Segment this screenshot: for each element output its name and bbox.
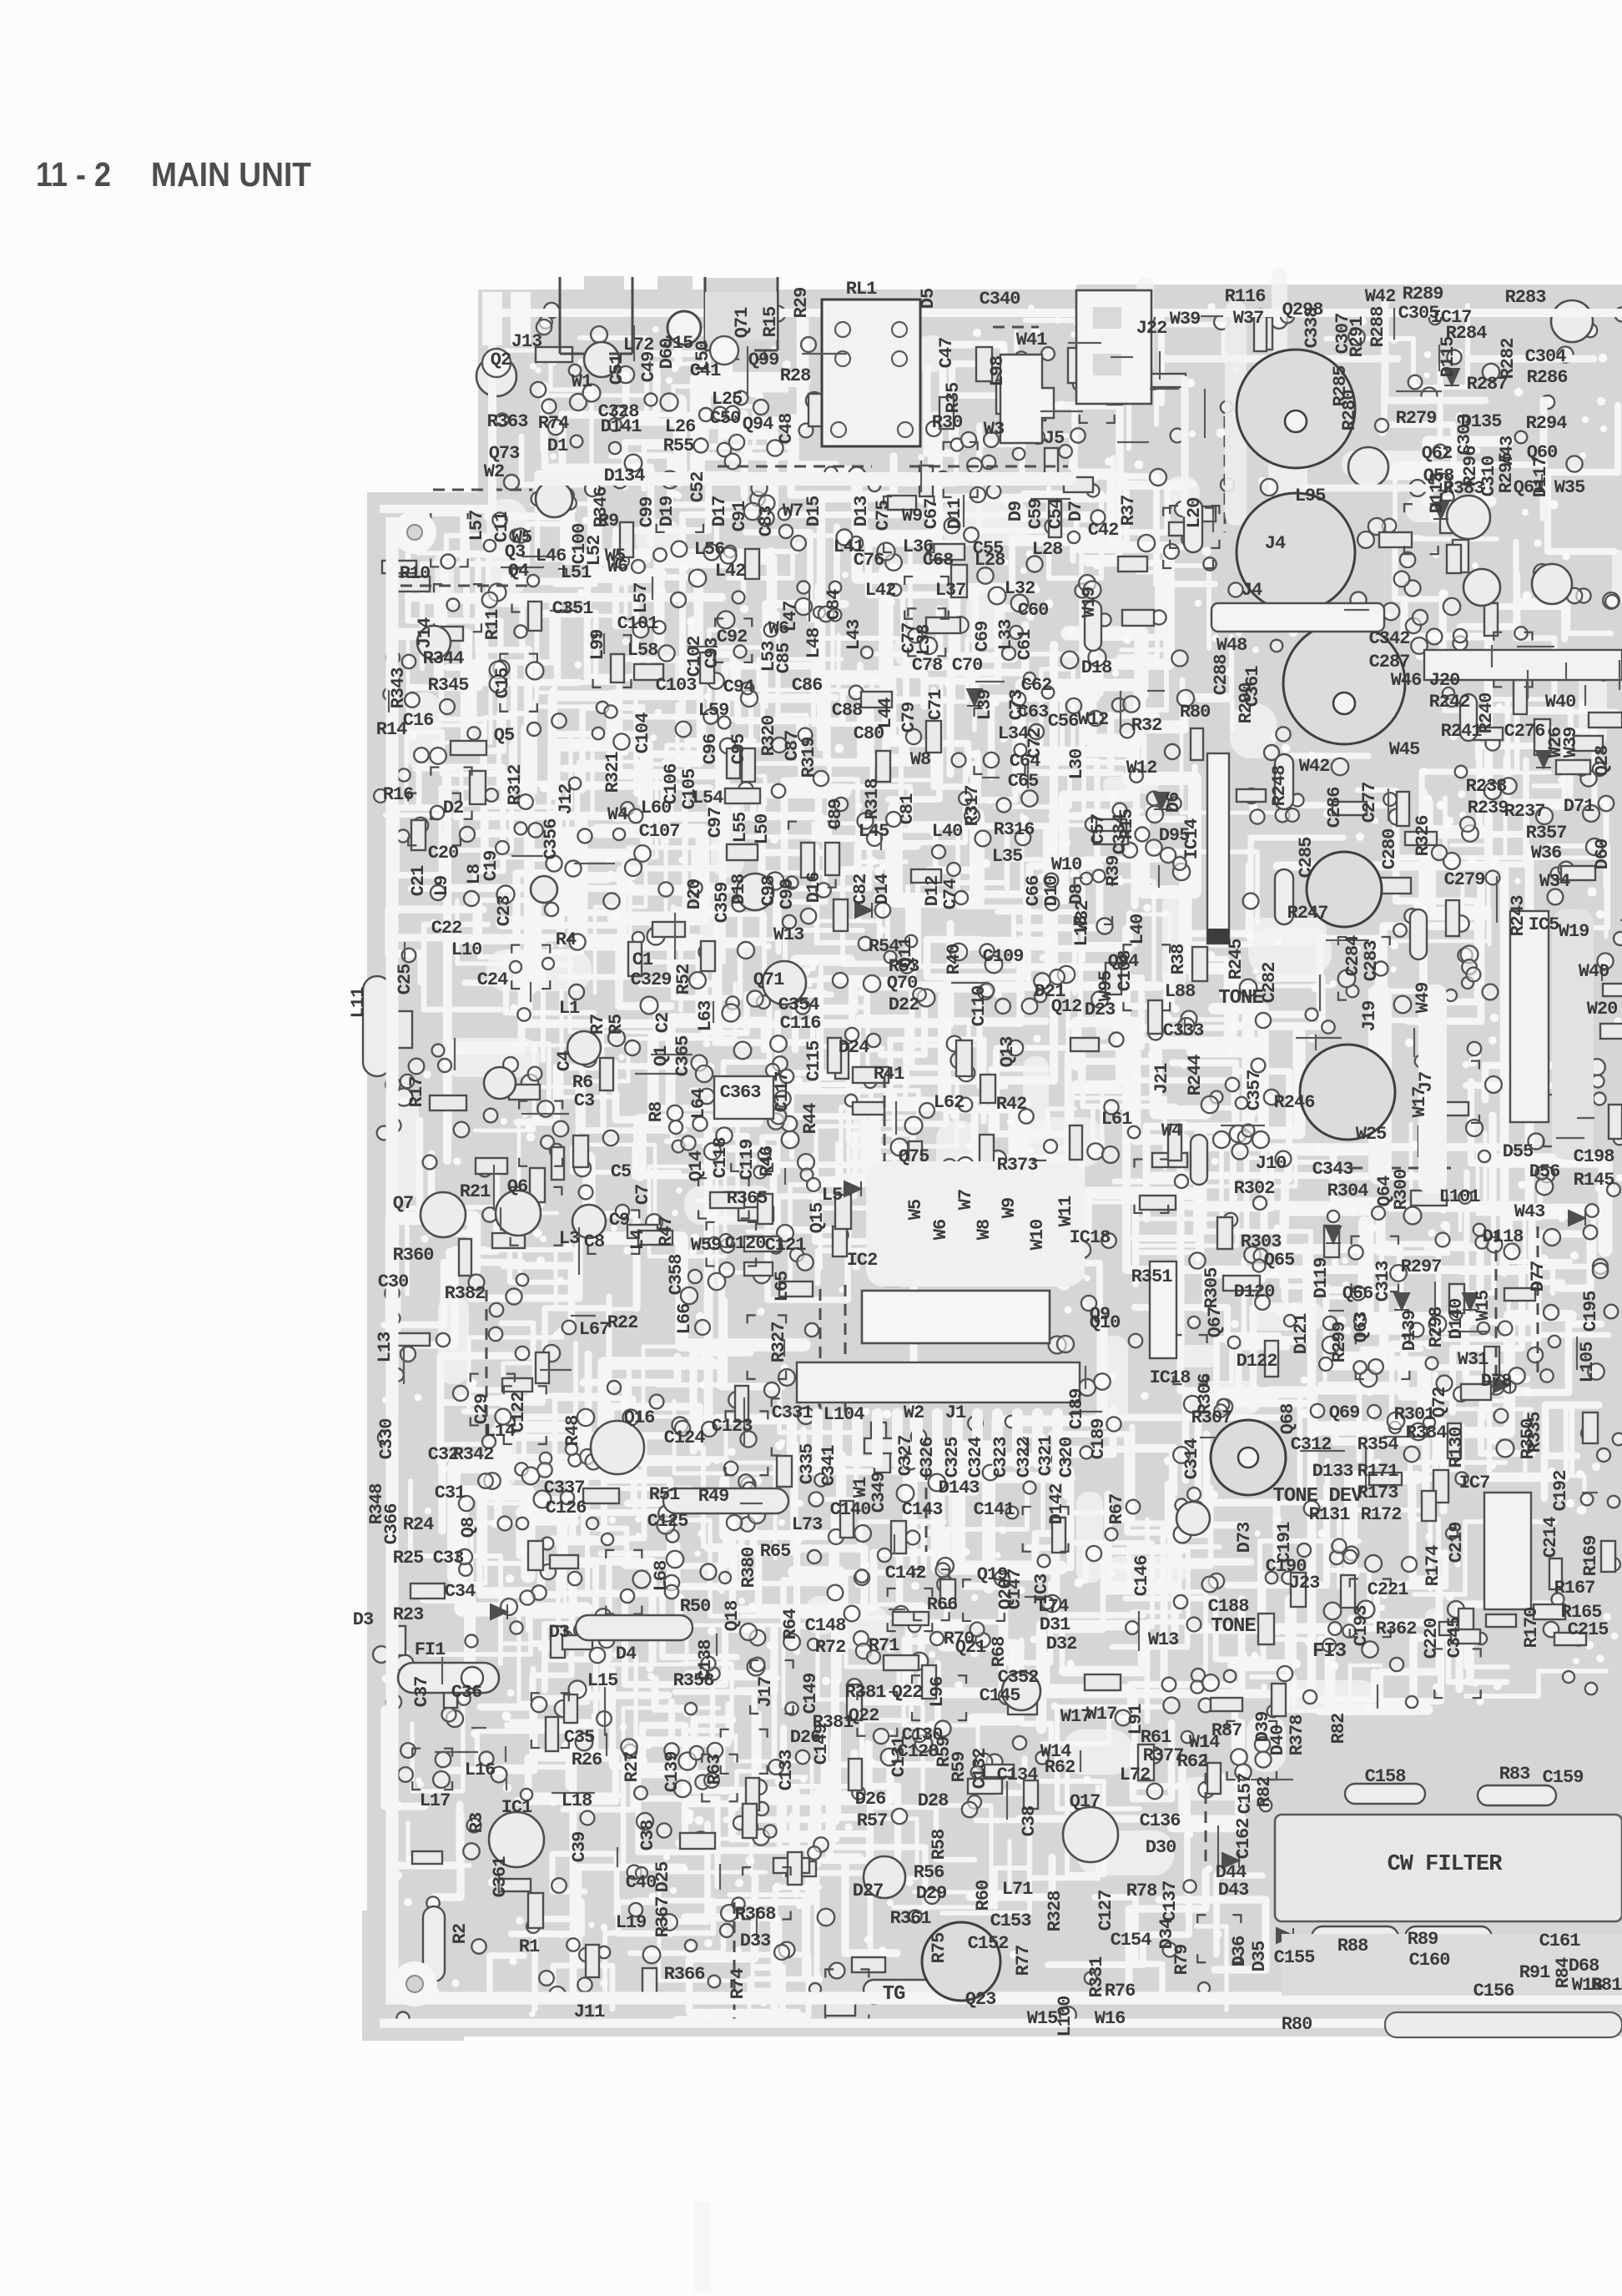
svg-text:C142: C142 — [885, 1563, 926, 1584]
svg-text:L64: L64 — [688, 1088, 709, 1119]
svg-text:D2: D2 — [443, 798, 463, 818]
svg-text:W37: W37 — [1233, 308, 1264, 329]
svg-text:C343: C343 — [1312, 1159, 1354, 1180]
svg-text:R244: R244 — [1185, 1055, 1206, 1096]
svg-text:Q12: Q12 — [1051, 996, 1082, 1017]
svg-text:C117: C117 — [772, 1072, 793, 1113]
svg-text:L72: L72 — [623, 335, 654, 355]
svg-text:W5: W5 — [511, 527, 532, 548]
svg-text:J23: J23 — [1289, 1573, 1320, 1594]
svg-text:C340: C340 — [980, 289, 1020, 310]
svg-text:L5: L5 — [822, 1185, 843, 1206]
svg-text:W12: W12 — [1126, 758, 1157, 778]
svg-text:C193: C193 — [1351, 1605, 1372, 1647]
svg-text:D143: D143 — [939, 1478, 980, 1498]
svg-text:C127: C127 — [1096, 1891, 1116, 1931]
svg-text:Q67: Q67 — [1205, 1307, 1226, 1338]
svg-text:W10: W10 — [1051, 854, 1082, 875]
svg-text:C33: C33 — [433, 1548, 464, 1568]
svg-text:C101: C101 — [617, 613, 659, 634]
svg-text:L57: L57 — [631, 583, 652, 614]
svg-text:L11: L11 — [348, 987, 369, 1018]
svg-text:C158: C158 — [1365, 1766, 1407, 1787]
svg-text:C2: C2 — [652, 1013, 673, 1033]
svg-text:C357: C357 — [1244, 1070, 1265, 1111]
svg-text:L16: L16 — [465, 1760, 496, 1780]
svg-text:R15: R15 — [1116, 808, 1137, 839]
svg-text:L13: L13 — [375, 1332, 395, 1362]
svg-text:D19: D19 — [657, 496, 678, 527]
svg-text:J13: J13 — [511, 331, 542, 352]
svg-text:C333: C333 — [1163, 1020, 1205, 1041]
svg-text:R28: R28 — [780, 365, 811, 386]
svg-text:D29: D29 — [916, 1883, 947, 1904]
svg-text:TONE: TONE — [1211, 1615, 1256, 1638]
svg-text:C286: C286 — [1324, 788, 1345, 828]
svg-text:C137: C137 — [1160, 1881, 1181, 1922]
svg-text:J5: J5 — [1044, 428, 1065, 449]
svg-text:C89: C89 — [825, 799, 846, 830]
svg-text:C198: C198 — [1574, 1146, 1615, 1167]
svg-text:Q61: Q61 — [1514, 477, 1544, 498]
svg-text:C331: C331 — [772, 1402, 814, 1423]
svg-text:L3: L3 — [559, 1228, 580, 1249]
svg-text:R82: R82 — [1328, 1714, 1349, 1745]
svg-text:L45: L45 — [859, 821, 889, 842]
svg-text:C81: C81 — [897, 793, 918, 824]
svg-text:Q16: Q16 — [624, 1407, 655, 1428]
svg-text:CW FILTER: CW FILTER — [1388, 1852, 1504, 1877]
svg-text:L50: L50 — [752, 814, 773, 845]
svg-text:C25: C25 — [395, 964, 416, 994]
svg-text:IC7: IC7 — [1459, 1473, 1490, 1493]
svg-text:L37: L37 — [935, 580, 966, 601]
svg-text:C214: C214 — [1540, 1517, 1561, 1558]
svg-text:C304: C304 — [1525, 346, 1567, 367]
svg-text:R173: R173 — [1358, 1483, 1399, 1503]
svg-text:R1: R1 — [519, 1936, 540, 1957]
svg-text:TG: TG — [883, 1983, 905, 2006]
svg-text:W9: W9 — [999, 1198, 1020, 1218]
svg-text:R16: R16 — [383, 784, 414, 805]
svg-text:R345: R345 — [428, 675, 470, 696]
svg-text:R63: R63 — [704, 1754, 725, 1785]
svg-text:Q22: Q22 — [892, 1682, 923, 1703]
svg-text:C365: C365 — [672, 1035, 693, 1077]
svg-text:L100: L100 — [1055, 1996, 1075, 2037]
svg-text:R88: R88 — [1337, 1936, 1368, 1956]
svg-text:D43: D43 — [1218, 1880, 1249, 1901]
svg-text:R3: R3 — [466, 1812, 487, 1833]
svg-text:C72: C72 — [1025, 728, 1045, 759]
svg-text:IC5: IC5 — [1529, 914, 1559, 935]
svg-text:C75: C75 — [873, 500, 894, 531]
svg-text:R237: R237 — [1504, 801, 1545, 822]
svg-text:Q66: Q66 — [1342, 1283, 1373, 1304]
svg-text:R41: R41 — [874, 1064, 904, 1085]
svg-text:D16: D16 — [803, 873, 824, 904]
svg-text:R362: R362 — [1376, 1619, 1417, 1639]
svg-text:IC1: IC1 — [501, 1797, 532, 1818]
svg-text:L73: L73 — [792, 1514, 823, 1535]
svg-text:L20: L20 — [1184, 498, 1205, 529]
svg-text:D139: D139 — [1399, 1311, 1420, 1352]
svg-text:D78: D78 — [1481, 1371, 1512, 1392]
svg-text:J17: J17 — [755, 1677, 776, 1708]
svg-text:L42: L42 — [715, 561, 746, 582]
svg-text:C23: C23 — [494, 895, 515, 926]
svg-text:TONE: TONE — [1218, 987, 1263, 1010]
svg-text:C21: C21 — [408, 865, 429, 896]
svg-text:Q8: Q8 — [458, 1517, 479, 1538]
svg-text:W31: W31 — [1458, 1349, 1489, 1370]
svg-text:L104: L104 — [824, 1404, 865, 1425]
svg-text:L67: L67 — [579, 1319, 610, 1340]
svg-text:D15: D15 — [803, 496, 824, 526]
svg-text:R312: R312 — [505, 765, 526, 806]
svg-text:C335: C335 — [797, 1443, 818, 1485]
svg-text:R77: R77 — [1013, 1946, 1034, 1976]
svg-text:C132: C132 — [970, 1749, 990, 1790]
svg-text:C54: C54 — [1045, 498, 1066, 529]
svg-text:Q68: Q68 — [1277, 1403, 1298, 1434]
svg-text:R319: R319 — [798, 738, 819, 778]
svg-text:C322: C322 — [1014, 1438, 1035, 1478]
svg-text:W39: W39 — [1560, 728, 1581, 758]
svg-text:C366: C366 — [381, 1504, 402, 1545]
svg-text:C358: C358 — [666, 1254, 687, 1296]
svg-text:L98: L98 — [987, 355, 1008, 386]
svg-text:W35: W35 — [1554, 477, 1585, 498]
svg-text:D119: D119 — [1311, 1258, 1332, 1299]
svg-text:Q69: Q69 — [1329, 1402, 1360, 1423]
svg-text:MAIN UNIT: MAIN UNIT — [151, 155, 311, 194]
svg-text:R242: R242 — [1429, 692, 1470, 712]
svg-text:R145: R145 — [1574, 1170, 1615, 1191]
svg-text:Q4: Q4 — [508, 561, 529, 582]
svg-text:D17: D17 — [709, 496, 730, 527]
svg-text:W7: W7 — [955, 1190, 976, 1210]
svg-text:R10: R10 — [400, 563, 431, 584]
svg-text:C95: C95 — [728, 733, 749, 764]
svg-text:R382: R382 — [445, 1283, 486, 1304]
svg-text:C188: C188 — [1208, 1596, 1250, 1617]
svg-text:D68: D68 — [1569, 1956, 1599, 1976]
svg-text:R50: R50 — [680, 1596, 711, 1617]
svg-text:R17: R17 — [406, 1077, 427, 1108]
svg-text:L88: L88 — [1165, 981, 1196, 1002]
svg-text:R131: R131 — [1309, 1504, 1351, 1525]
svg-text:Q94: Q94 — [743, 414, 773, 435]
svg-text:R87: R87 — [1211, 1720, 1242, 1741]
svg-text:C215: C215 — [1568, 1619, 1609, 1640]
svg-text:C36: C36 — [451, 1682, 482, 1703]
svg-text:C280: C280 — [1379, 829, 1400, 870]
svg-text:C16: C16 — [403, 710, 434, 731]
svg-text:R321: R321 — [602, 752, 623, 793]
svg-text:R246: R246 — [1274, 1092, 1315, 1113]
svg-text:Q75: Q75 — [899, 1146, 929, 1167]
svg-text:L60: L60 — [641, 798, 672, 818]
svg-text:C126: C126 — [546, 1498, 587, 1518]
svg-text:C22: C22 — [431, 918, 462, 939]
svg-text:C220: C220 — [1421, 1619, 1442, 1659]
svg-text:C61: C61 — [1015, 629, 1035, 660]
svg-text:W39: W39 — [1170, 309, 1201, 330]
svg-text:W13: W13 — [1148, 1629, 1179, 1650]
svg-text:C97: C97 — [705, 808, 726, 838]
svg-text:C9: C9 — [609, 1210, 629, 1231]
svg-text:C283: C283 — [1361, 940, 1382, 982]
svg-text:R380: R380 — [738, 1548, 759, 1589]
svg-text:R318: R318 — [862, 778, 883, 820]
svg-text:Q99: Q99 — [748, 350, 779, 370]
svg-text:C56: C56 — [1048, 711, 1079, 732]
svg-text:R46: R46 — [757, 1146, 778, 1177]
svg-text:R44: R44 — [800, 1103, 821, 1134]
svg-text:D18: D18 — [728, 874, 749, 904]
svg-text:J4: J4 — [1265, 533, 1286, 554]
svg-text:D30: D30 — [1146, 1837, 1176, 1858]
svg-text:Q7: Q7 — [393, 1193, 413, 1214]
svg-text:L25: L25 — [712, 389, 743, 410]
svg-text:R74: R74 — [538, 413, 569, 434]
svg-text:D20: D20 — [684, 879, 705, 910]
svg-text:C51: C51 — [607, 354, 627, 385]
svg-text:C3: C3 — [574, 1090, 595, 1111]
svg-text:C35: C35 — [564, 1727, 595, 1748]
svg-text:C86: C86 — [792, 675, 823, 696]
svg-text:R76: R76 — [1105, 1981, 1136, 2001]
svg-text:L101: L101 — [1439, 1186, 1481, 1207]
svg-text:L96: L96 — [927, 1677, 948, 1708]
svg-text:Q70: Q70 — [887, 973, 918, 994]
svg-text:C116: C116 — [780, 1013, 821, 1034]
svg-text:C39: C39 — [569, 1832, 590, 1863]
svg-text:L58: L58 — [627, 640, 658, 661]
svg-text:C143: C143 — [902, 1499, 944, 1520]
svg-text:C91: C91 — [729, 501, 750, 531]
svg-text:R291: R291 — [1347, 316, 1368, 358]
svg-text:C115: C115 — [803, 1040, 824, 1082]
svg-text:Q2: Q2 — [491, 350, 511, 370]
svg-text:W42: W42 — [1365, 286, 1396, 307]
svg-text:R62: R62 — [1177, 1751, 1208, 1772]
svg-text:C148: C148 — [805, 1615, 847, 1636]
svg-text:R304: R304 — [1327, 1181, 1369, 1201]
svg-text:R298: R298 — [1426, 1307, 1447, 1348]
svg-text:R81: R81 — [1591, 1975, 1622, 1996]
svg-text:R2: R2 — [450, 1924, 471, 1944]
svg-text:RL1: RL1 — [846, 279, 877, 300]
svg-text:R366: R366 — [664, 1964, 705, 1985]
svg-text:C74: C74 — [940, 879, 961, 909]
svg-text:W40: W40 — [1579, 961, 1609, 982]
svg-text:11 - 2: 11 - 2 — [36, 155, 111, 194]
svg-text:Q17: Q17 — [1070, 1791, 1101, 1812]
svg-text:D27: D27 — [853, 1881, 884, 1901]
svg-text:W6: W6 — [607, 556, 627, 577]
svg-text:W1: W1 — [572, 371, 592, 392]
svg-text:R172: R172 — [1361, 1504, 1402, 1525]
svg-text:R361: R361 — [890, 1908, 932, 1929]
svg-text:R35: R35 — [943, 382, 964, 413]
svg-text:C147: C147 — [1005, 1569, 1025, 1610]
svg-text:R378: R378 — [1287, 1714, 1307, 1756]
svg-text:R62: R62 — [1045, 1757, 1075, 1778]
svg-text:L33: L33 — [995, 619, 1016, 650]
svg-text:W19: W19 — [1079, 587, 1100, 618]
svg-text:D33: D33 — [740, 1931, 771, 1951]
svg-text:C69: C69 — [972, 622, 993, 652]
svg-text:D73: D73 — [1234, 1522, 1255, 1553]
svg-text:R316: R316 — [994, 819, 1035, 840]
svg-text:R89: R89 — [1408, 1929, 1438, 1950]
svg-text:C78: C78 — [912, 655, 943, 676]
svg-text:L52: L52 — [584, 536, 605, 566]
svg-text:C189: C189 — [1066, 1389, 1087, 1430]
svg-text:R243: R243 — [1508, 895, 1529, 937]
svg-text:L91: L91 — [1126, 1704, 1146, 1735]
svg-text:J4: J4 — [1242, 580, 1262, 601]
svg-text:L4: L4 — [627, 1229, 648, 1250]
svg-text:R56: R56 — [914, 1862, 944, 1883]
svg-text:C34: C34 — [445, 1581, 476, 1602]
svg-text:W34: W34 — [1539, 871, 1570, 892]
svg-text:C47: C47 — [936, 338, 957, 369]
svg-text:C363: C363 — [720, 1082, 762, 1103]
svg-text:R241: R241 — [1441, 721, 1483, 742]
svg-text:C326: C326 — [917, 1438, 938, 1478]
svg-text:W7: W7 — [783, 501, 803, 521]
svg-text:L54: L54 — [693, 788, 723, 808]
svg-text:Q21: Q21 — [955, 1637, 986, 1658]
svg-text:D22: D22 — [889, 994, 919, 1015]
svg-text:R245: R245 — [1226, 939, 1247, 980]
svg-text:R373: R373 — [997, 1155, 1039, 1176]
svg-text:C88: C88 — [832, 700, 863, 721]
svg-text:W19: W19 — [1559, 921, 1589, 942]
svg-text:W3: W3 — [984, 419, 1005, 440]
svg-text:C152: C152 — [968, 1933, 1009, 1954]
svg-text:C11: C11 — [491, 511, 512, 542]
svg-text:R167: R167 — [1554, 1578, 1595, 1599]
svg-text:R4: R4 — [556, 929, 577, 950]
svg-text:R22: R22 — [607, 1312, 638, 1333]
svg-text:Q28: Q28 — [1592, 745, 1613, 776]
svg-text:R80: R80 — [1180, 702, 1211, 723]
svg-text:C29: C29 — [471, 1394, 492, 1425]
svg-text:Q13: Q13 — [997, 1036, 1018, 1067]
svg-text:J21: J21 — [1151, 1063, 1172, 1094]
svg-text:R294: R294 — [1526, 413, 1568, 434]
svg-text:C118: C118 — [710, 1137, 731, 1179]
svg-text:Q14: Q14 — [686, 1151, 707, 1181]
svg-text:C146: C146 — [1131, 1556, 1152, 1597]
svg-text:C189: C189 — [1088, 1419, 1109, 1460]
svg-text:R51: R51 — [649, 1484, 680, 1505]
svg-text:C30: C30 — [378, 1271, 409, 1292]
svg-text:C160: C160 — [1409, 1950, 1450, 1971]
svg-text:W8: W8 — [974, 1219, 995, 1240]
svg-text:R248: R248 — [1269, 765, 1290, 807]
svg-text:D23: D23 — [1085, 999, 1116, 1020]
svg-text:C94: C94 — [723, 677, 754, 697]
svg-text:Q15: Q15 — [807, 1202, 828, 1233]
svg-text:FI3: FI3 — [1312, 1640, 1347, 1663]
svg-text:L38: L38 — [914, 624, 934, 655]
svg-text:C60: C60 — [1018, 600, 1049, 621]
svg-text:C145: C145 — [980, 1685, 1021, 1706]
svg-text:D60: D60 — [657, 339, 678, 370]
svg-text:C133: C133 — [776, 1750, 797, 1791]
svg-text:C15: C15 — [492, 667, 513, 698]
svg-text:L40: L40 — [1127, 914, 1148, 945]
svg-text:C276: C276 — [1504, 721, 1545, 742]
svg-text:C52: C52 — [688, 472, 708, 503]
svg-text:C159: C159 — [1543, 1767, 1584, 1788]
svg-text:D24: D24 — [839, 1037, 869, 1058]
svg-text:J12: J12 — [556, 784, 577, 815]
svg-text:C149: C149 — [800, 1674, 821, 1714]
svg-text:C349: C349 — [869, 1473, 889, 1513]
svg-text:C19: C19 — [481, 851, 501, 882]
svg-text:W17: W17 — [1086, 1704, 1117, 1725]
svg-text:D36: D36 — [1229, 1936, 1250, 1967]
svg-text:C31: C31 — [435, 1483, 466, 1503]
svg-text:R360: R360 — [393, 1245, 434, 1266]
svg-text:R25: R25 — [393, 1548, 424, 1568]
svg-text:C338: C338 — [1302, 307, 1322, 349]
svg-text:C277: C277 — [1359, 783, 1380, 823]
svg-text:L105: L105 — [1577, 1342, 1598, 1383]
svg-text:IC2: IC2 — [847, 1250, 878, 1271]
svg-text:C157: C157 — [1235, 1774, 1256, 1815]
svg-text:R8: R8 — [646, 1101, 667, 1122]
svg-text:D4: D4 — [616, 1644, 637, 1664]
svg-text:C120: C120 — [725, 1233, 766, 1254]
svg-text:D11: D11 — [944, 498, 965, 529]
svg-text:R79: R79 — [1171, 1945, 1192, 1976]
svg-text:Q94: Q94 — [1108, 951, 1139, 972]
svg-text:Q71: Q71 — [753, 969, 784, 990]
svg-text:D1: D1 — [547, 436, 568, 456]
svg-text:R83: R83 — [1499, 1764, 1530, 1785]
svg-text:W11: W11 — [1055, 1196, 1076, 1226]
svg-text:C83: C83 — [756, 506, 777, 536]
svg-text:R130: R130 — [1446, 1427, 1467, 1468]
svg-text:L50: L50 — [693, 341, 713, 372]
svg-text:C4: C4 — [554, 1050, 575, 1071]
svg-text:C1: C1 — [632, 949, 653, 970]
svg-text:C356: C356 — [541, 819, 562, 860]
svg-text:R169: R169 — [1580, 1536, 1601, 1577]
svg-text:R307: R307 — [1191, 1407, 1232, 1428]
svg-text:R283: R283 — [1505, 287, 1547, 308]
svg-text:IC18: IC18 — [1070, 1227, 1111, 1248]
svg-text:Q23: Q23 — [965, 1989, 996, 2010]
svg-text:W59: W59 — [691, 1235, 722, 1256]
svg-text:D40: D40 — [1267, 1725, 1288, 1756]
svg-text:R358: R358 — [673, 1670, 715, 1691]
svg-text:C140: C140 — [830, 1499, 871, 1520]
svg-text:L39: L39 — [975, 690, 995, 721]
svg-text:C40: C40 — [626, 1872, 657, 1893]
svg-text:C70: C70 — [952, 655, 983, 676]
svg-text:J1: J1 — [945, 1402, 966, 1423]
svg-text:L71: L71 — [1002, 1879, 1033, 1900]
svg-text:C221: C221 — [1368, 1579, 1409, 1600]
